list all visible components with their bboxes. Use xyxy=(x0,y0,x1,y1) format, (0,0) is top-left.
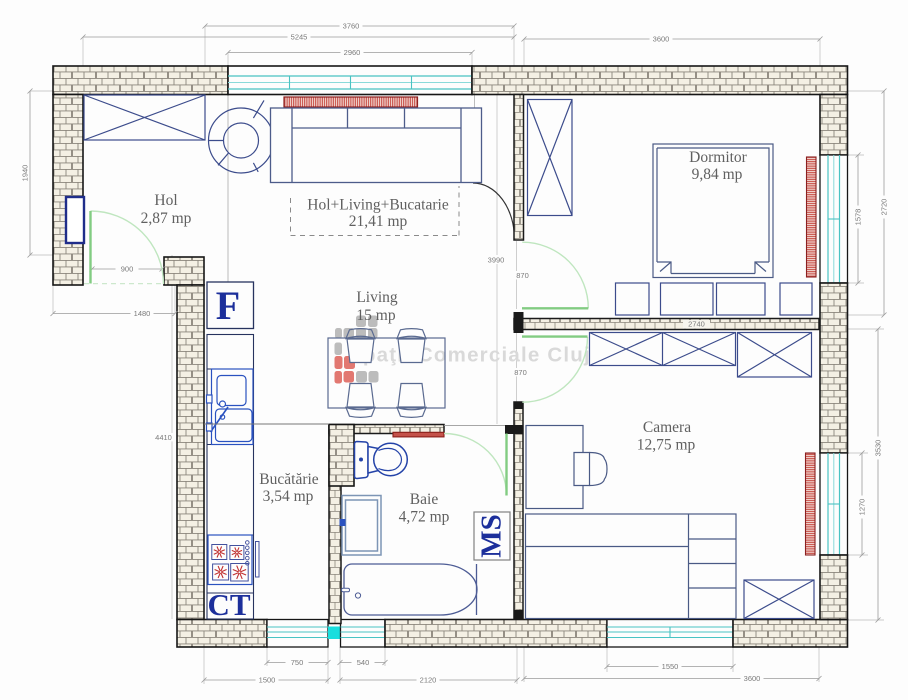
svg-text:15 mp: 15 mp xyxy=(356,307,395,324)
svg-text:3760: 3760 xyxy=(343,22,360,31)
svg-text:4410: 4410 xyxy=(155,433,172,442)
svg-text:2,87 mp: 2,87 mp xyxy=(141,210,192,227)
svg-text:3600: 3600 xyxy=(744,674,761,683)
svg-text:1940: 1940 xyxy=(21,165,30,182)
svg-text:870: 870 xyxy=(514,368,527,377)
svg-text:1550: 1550 xyxy=(662,662,679,671)
svg-text:Dormitor: Dormitor xyxy=(689,149,748,166)
svg-text:2960: 2960 xyxy=(344,48,361,57)
svg-text:Hol+Living+Bucatarie: Hol+Living+Bucatarie xyxy=(307,197,449,214)
svg-text:MS: MS xyxy=(476,514,508,558)
svg-text:Spaţii Comerciale Cluj: Spaţii Comerciale Cluj xyxy=(348,344,591,367)
svg-text:Bucătărie: Bucătărie xyxy=(259,471,319,488)
svg-text:5245: 5245 xyxy=(291,33,308,42)
svg-text:12,75 mp: 12,75 mp xyxy=(637,437,696,454)
svg-text:3990: 3990 xyxy=(488,256,505,265)
svg-text:F: F xyxy=(216,283,240,328)
svg-text:9,84 mp: 9,84 mp xyxy=(692,166,743,183)
svg-text:870: 870 xyxy=(516,271,529,280)
svg-text:Hol: Hol xyxy=(154,192,177,209)
svg-text:3,54 mp: 3,54 mp xyxy=(263,488,314,505)
svg-text:2720: 2720 xyxy=(880,199,889,216)
svg-text:750: 750 xyxy=(291,658,304,667)
svg-text:1500: 1500 xyxy=(259,676,276,685)
svg-text:1270: 1270 xyxy=(858,499,867,516)
svg-text:540: 540 xyxy=(357,658,370,667)
svg-text:Baie: Baie xyxy=(410,491,439,508)
svg-text:3600: 3600 xyxy=(653,35,670,44)
svg-text:Living: Living xyxy=(356,289,398,306)
svg-text:21,41 mp: 21,41 mp xyxy=(349,213,408,230)
svg-text:3530: 3530 xyxy=(874,440,883,457)
svg-text:2740: 2740 xyxy=(688,320,705,329)
svg-text:1578: 1578 xyxy=(854,209,863,226)
svg-text:1480: 1480 xyxy=(134,309,151,318)
svg-text:CT: CT xyxy=(207,587,250,622)
svg-text:900: 900 xyxy=(121,265,134,274)
svg-text:2120: 2120 xyxy=(420,676,437,685)
svg-text:Camera: Camera xyxy=(643,419,691,436)
svg-text:4,72 mp: 4,72 mp xyxy=(399,509,450,526)
